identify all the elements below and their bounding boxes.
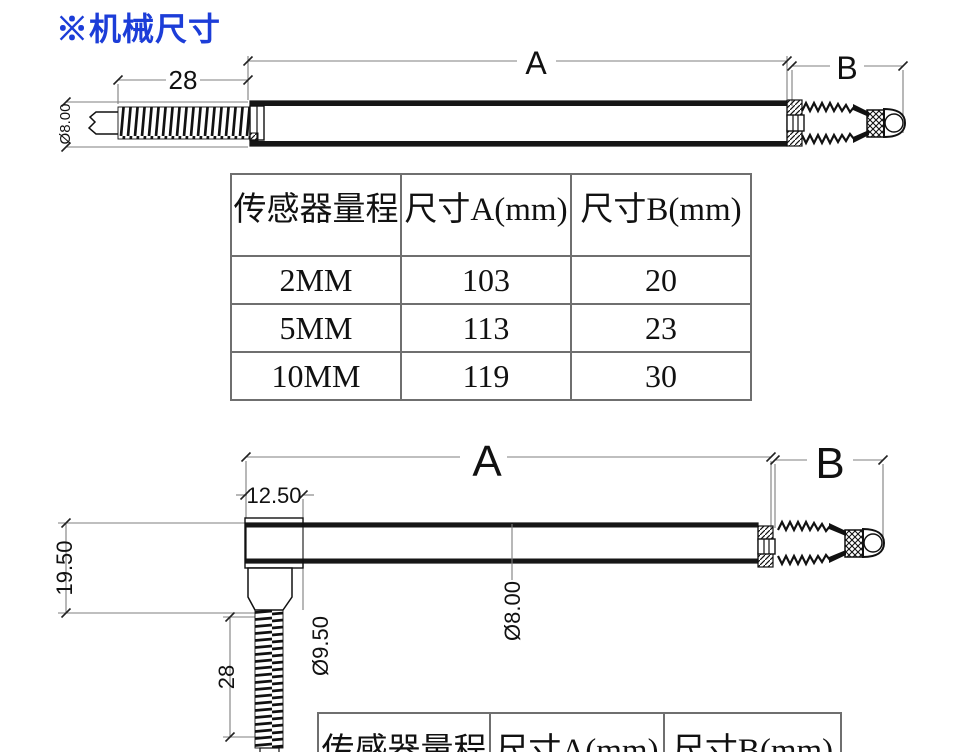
table2-header-dim-a: 尺寸A(mm): [490, 713, 664, 752]
d1-body-tube: [250, 101, 787, 146]
cell-dim-b: 23: [571, 304, 751, 352]
d1-knurled-head: [867, 110, 884, 137]
d2-elbow-housing: [248, 568, 292, 610]
d2-thread-stud: [255, 610, 283, 748]
table2-header-dim-b: 尺寸B(mm): [664, 713, 841, 752]
d1-rod-break: [89, 112, 118, 134]
d1-ball-tip: [884, 109, 905, 137]
table-row: 10MM 119 30: [231, 352, 751, 400]
d2-dimension-lines: [236, 457, 883, 495]
d2-dim-28-label: 28: [214, 665, 239, 689]
d1-collar: [250, 106, 264, 141]
cell-dim-b: 30: [571, 352, 751, 400]
d1-dim-diameter-label: Ø8.00: [57, 104, 74, 145]
d2-dim-a-label: A: [472, 437, 502, 486]
d2-end-flange: [758, 526, 775, 567]
d2-spring-flare-top: [829, 523, 846, 536]
cell-range: 2MM: [231, 256, 401, 304]
cell-range: 5MM: [231, 304, 401, 352]
table-row: 2MM 103 20: [231, 256, 751, 304]
d1-part-shapes: [89, 100, 905, 146]
d2-ball-tip: [863, 529, 884, 557]
d1-dim-b-label: B: [836, 50, 857, 86]
table1-header-dim-a: 尺寸A(mm): [401, 174, 571, 256]
d2-dim-12-50-label: 12.50: [246, 483, 301, 508]
table2-header-row: 传感器量程 尺寸A(mm) 尺寸B(mm): [318, 713, 841, 752]
d2-knurled-head: [845, 530, 863, 557]
table1-header-dim-b: 尺寸B(mm): [571, 174, 751, 256]
d2-dim-b-label: B: [815, 439, 844, 488]
d2-spring-bellows: [778, 522, 830, 564]
cell-dim-a: 103: [401, 256, 571, 304]
d1-thread-section: [118, 107, 250, 139]
d2-dim-d9-50-label: Ø9.50: [308, 616, 333, 676]
dimension-table-right-angle: 传感器量程 尺寸A(mm) 尺寸B(mm): [317, 712, 842, 752]
cell-range: 10MM: [231, 352, 401, 400]
d2-body-tube: [246, 523, 758, 568]
d2-extension-lines: [58, 461, 883, 737]
dimension-table-straight: 传感器量程 尺寸A(mm) 尺寸B(mm) 2MM 103 20 5MM 113…: [230, 173, 752, 401]
d2-dimension-ticks: [62, 453, 888, 742]
d2-spring-flare-bottom: [829, 550, 846, 563]
cell-dim-a: 119: [401, 352, 571, 400]
d2-stud-tail: [260, 748, 279, 752]
table-row: 5MM 113 23: [231, 304, 751, 352]
d2-dim-19-50-label: 19.50: [52, 540, 77, 595]
d2-dim-d8-00-label: Ø8.00: [500, 581, 525, 641]
table1-header-row: 传感器量程 尺寸A(mm) 尺寸B(mm): [231, 174, 751, 256]
cell-dim-b: 20: [571, 256, 751, 304]
d1-dim-28-label: 28: [169, 65, 198, 95]
spec-sheet-page: ※机械尺寸: [0, 0, 960, 752]
table1-header-range: 传感器量程: [231, 174, 401, 256]
d1-spring-bellows: [802, 103, 854, 143]
drawing-right-angle-sensor: A B 12.50 19.50 28 Ø9.50 Ø8.00: [52, 437, 888, 752]
cell-dim-a: 113: [401, 304, 571, 352]
drawing-straight-sensor: 28 A B Ø8.00: [57, 45, 908, 152]
table2-header-range: 传感器量程: [318, 713, 490, 752]
d1-dim-a-label: A: [525, 45, 547, 81]
d1-end-flange: [787, 100, 804, 146]
